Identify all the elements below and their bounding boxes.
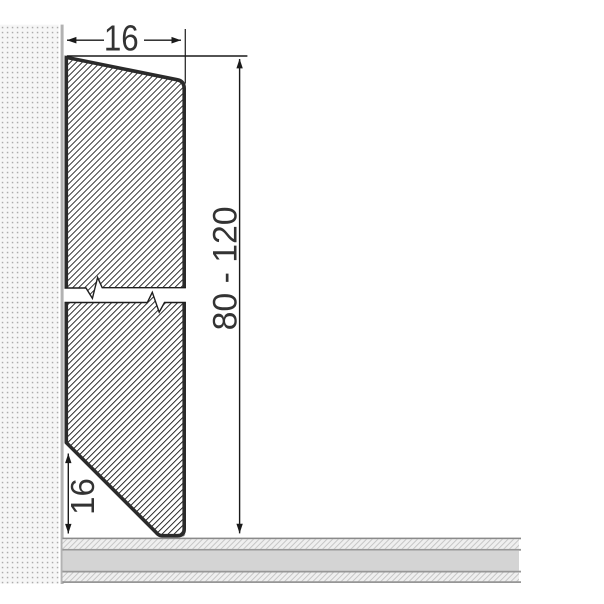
svg-text:16: 16	[104, 18, 139, 59]
svg-text:80 - 120: 80 - 120	[207, 206, 245, 330]
svg-text:16: 16	[64, 478, 101, 515]
